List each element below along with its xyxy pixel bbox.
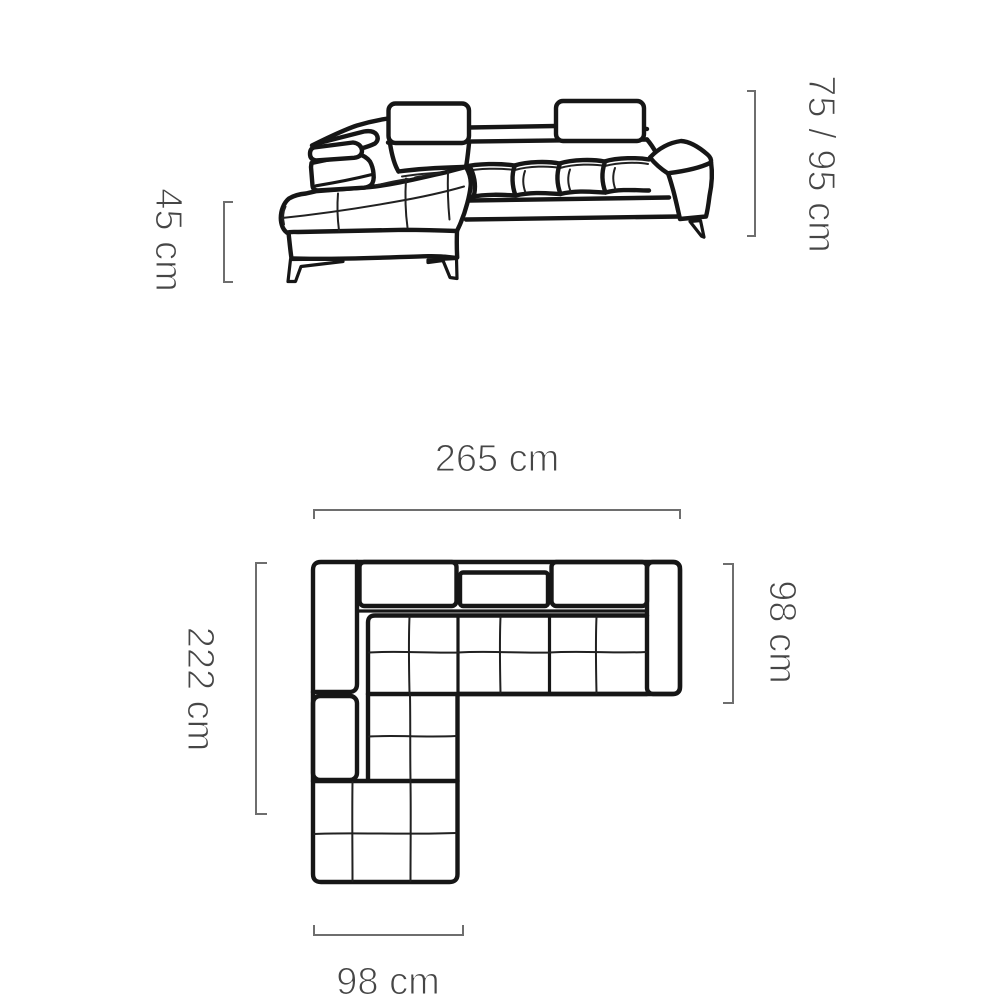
svg-text:45 cm: 45 cm: [147, 188, 189, 291]
svg-text:98 cm: 98 cm: [336, 961, 439, 1000]
svg-text:222 cm: 222 cm: [179, 627, 221, 752]
svg-text:75 / 95 cm: 75 / 95 cm: [800, 75, 842, 252]
svg-text:98 cm: 98 cm: [761, 580, 803, 683]
svg-text:265 cm: 265 cm: [435, 438, 560, 480]
